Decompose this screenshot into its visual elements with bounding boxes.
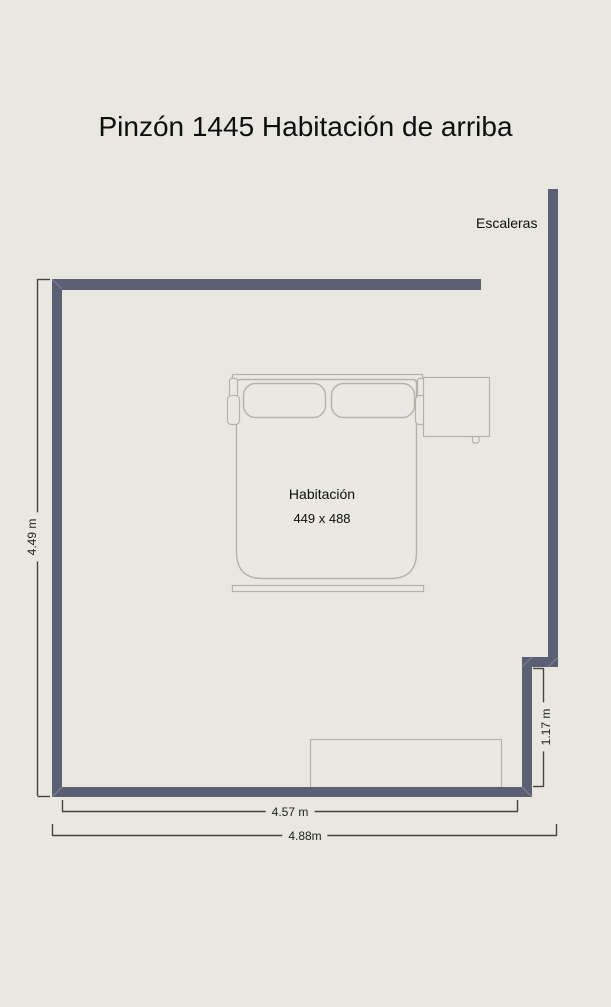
dimension-label-bottom-inner: 4.57 m [266, 805, 315, 819]
room-size-label: 449 x 488 [242, 511, 402, 526]
nightstand [424, 378, 490, 444]
bed-pillow-left [244, 384, 326, 418]
dimension-label-bottom-outer: 4.88m [282, 829, 327, 843]
dresser [311, 740, 502, 788]
bed-left-rail [228, 396, 240, 425]
dimension-label-right: 1.17 m [539, 703, 553, 752]
floor-plan-canvas: Pinzón 1445 Habitación de arriba Escaler… [0, 0, 611, 1007]
nightstand-top [424, 378, 490, 437]
wall-left [52, 279, 62, 797]
wall-top [52, 279, 481, 290]
bed-pillow-right [332, 384, 415, 418]
bed-footboard [233, 586, 424, 592]
bed [228, 375, 428, 592]
nightstand-knob [473, 437, 480, 444]
wall-bottom [52, 787, 532, 797]
wall-right-lower [522, 657, 532, 797]
wall-right-upper-stairs [548, 189, 558, 667]
room-name-label: Habitación [242, 486, 402, 502]
dimension-left [38, 279, 51, 797]
stairs-label: Escaleras [476, 215, 537, 231]
page-title: Pinzón 1445 Habitación de arriba [0, 110, 611, 144]
floor-plan-drawing [0, 0, 611, 1007]
dimension-label-left: 4.49 m [25, 513, 39, 562]
